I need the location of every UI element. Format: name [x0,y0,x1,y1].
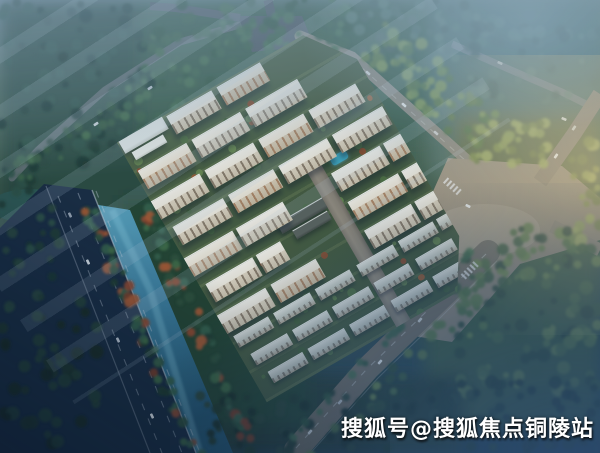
townhouse [391,280,434,312]
tree [332,295,338,301]
townhouse [268,352,309,383]
tree [260,374,266,380]
building-slab [256,241,291,273]
tree [185,208,192,215]
tree [320,250,330,260]
tree [442,284,451,293]
tree [366,94,373,101]
townhouse [349,305,390,336]
aerial-render-photo: 搜狐号@搜狐焦点铜陵站 [0,0,600,453]
watermark-text: 搜狐号@搜狐焦点铜陵站 [341,411,594,443]
